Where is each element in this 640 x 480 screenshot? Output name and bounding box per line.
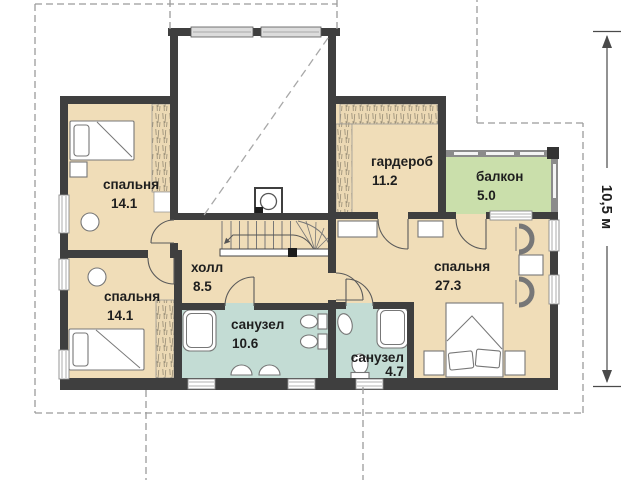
window-top-2 (261, 27, 321, 37)
window-bathroom-large-2 (288, 379, 315, 389)
cabinet-icon-2 (418, 221, 443, 237)
dresser-bedroom-top-left (154, 192, 172, 212)
side-table-icon (519, 255, 543, 275)
dimension-arrow-down (602, 370, 612, 383)
window-under-balcony (490, 211, 532, 220)
toilet-icon-2 (301, 334, 328, 349)
void-double-height-area (174, 32, 332, 217)
label-balcony-name: балкон (476, 169, 523, 184)
window-bedroom-top-left (59, 195, 69, 233)
label-wardrobe-name: гардероб (371, 154, 433, 169)
stool-icon-bedroom-top-left (81, 213, 99, 231)
bed-icon-bedroom-bottom-left (69, 329, 144, 370)
label-bathroom-large-area: 10.6 (232, 336, 259, 351)
label-hall-area: 8.5 (193, 279, 212, 294)
window-bathroom-large-1 (188, 379, 215, 389)
dimension-arrow-up (602, 35, 612, 48)
label-bedroom-bottom-left-name: спальня (104, 289, 160, 304)
label-master-bedroom-name: спальня (434, 259, 490, 274)
label-bedroom-top-left-area: 14.1 (111, 196, 138, 211)
label-master-bedroom-area: 27.3 (435, 278, 462, 293)
window-top-1 (191, 27, 253, 37)
nightstand-icon (424, 351, 444, 375)
closet-wardrobe-top (340, 104, 438, 124)
label-bedroom-top-left-name: спальня (103, 177, 159, 192)
bathtub-icon-small (377, 307, 408, 348)
stair-railing (220, 249, 333, 256)
window-master-right-1 (549, 220, 559, 251)
bathtub-icon-large (183, 310, 216, 351)
label-bedroom-bottom-left-area: 14.1 (107, 308, 134, 323)
window-bedroom-bottom-left-2 (59, 350, 69, 379)
dimension-label: 10,5 м (598, 185, 615, 229)
toilet-icon-1 (301, 314, 328, 329)
window-master-right-2 (549, 275, 559, 304)
floor-plan-canvas: 10,5 м спальня 14.1 спальня 14.1 холл 8.… (0, 0, 640, 480)
label-bathroom-small-area: 4.7 (385, 364, 404, 379)
label-wardrobe-area: 11.2 (372, 173, 398, 188)
closet-wardrobe-left (336, 124, 352, 213)
railing-post (288, 248, 297, 257)
stool-icon-bedroom-bottom-left (88, 268, 106, 286)
nightstand-icon (505, 351, 525, 375)
label-balcony-area: 5.0 (477, 188, 496, 203)
label-bathroom-large-name: санузел (231, 317, 284, 332)
chimney (255, 188, 282, 215)
cabinet-icon-1 (338, 221, 377, 237)
window-bedroom-bottom-left-1 (59, 259, 69, 290)
window-bathroom-small (356, 379, 383, 389)
parapet-corner-post (547, 147, 559, 159)
nightstand-icon (70, 162, 87, 177)
label-hall-name: холл (191, 260, 223, 275)
closet-bedroom-bottom-left (156, 300, 174, 378)
label-bathroom-small-name: санузел (351, 350, 404, 365)
